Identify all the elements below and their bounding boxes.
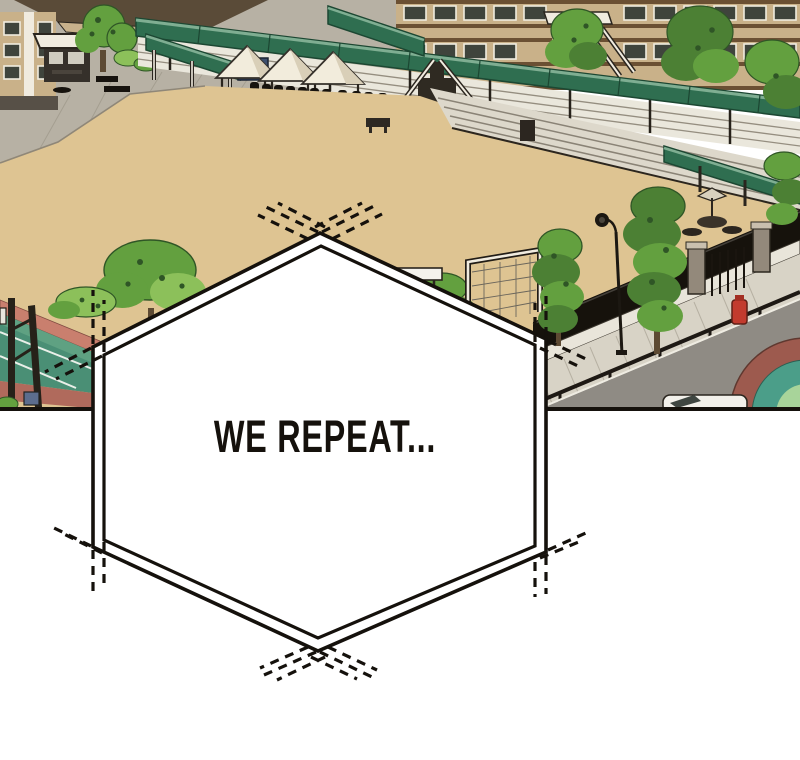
webtoon-panel: WE REPEAT... (0, 0, 800, 760)
trash-bin (520, 120, 535, 141)
storage-box (24, 392, 39, 405)
caption-text: WE REPEAT... (181, 413, 469, 461)
panel-artwork (0, 0, 800, 760)
tree (661, 6, 739, 83)
fire-hydrant (732, 295, 747, 324)
